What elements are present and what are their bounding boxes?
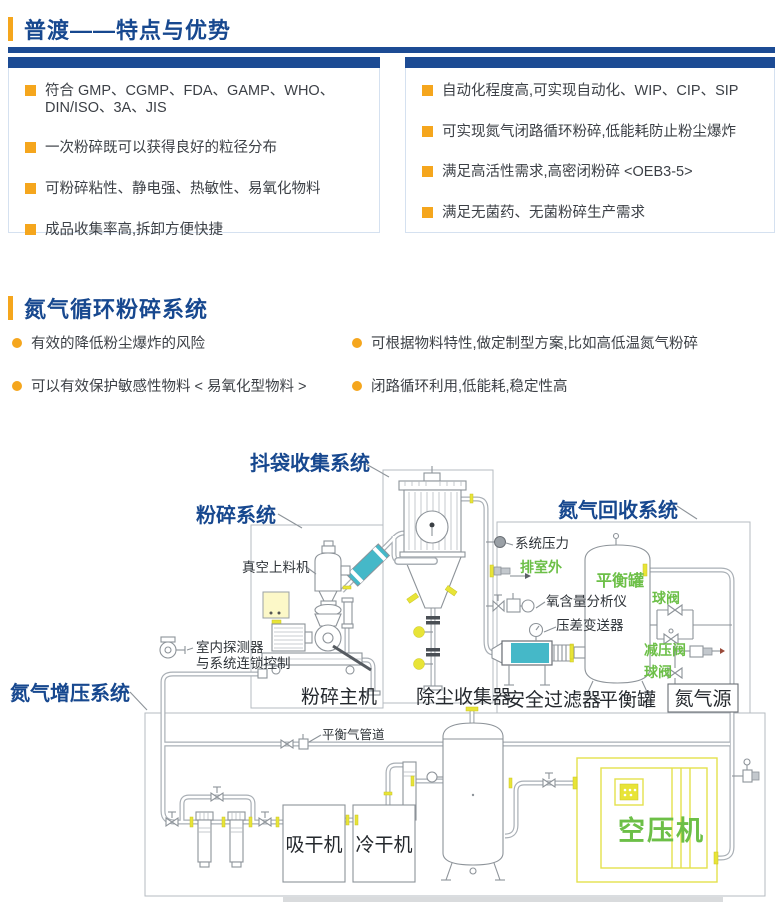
filter-housing	[228, 812, 245, 867]
bullet-text: 可根据物料特性,做定制型方案,比如高低温氮气粉碎	[371, 336, 698, 353]
feature-text: 符合 GMP、CGMP、FDA、GAMP、WHO、DIN/ISO、3A、JIS	[45, 83, 369, 116]
ball-valve-icon	[668, 605, 682, 615]
arrow-right-icon	[720, 648, 725, 654]
pressure-reducing-valve-label: 减压阀	[644, 642, 686, 658]
system-diagram: 抖袋收集系统 粉碎系统 氮气回收系统 氮气增压系统 真空上料机 系统压力 排室外…	[0, 440, 780, 910]
bullet-dot-icon	[352, 338, 362, 348]
bag-collection-label: 抖袋收集系统	[250, 451, 370, 475]
balance-tank	[570, 534, 652, 695]
bullet-item: 闭路循环利用,低能耗,稳定性高	[352, 379, 774, 396]
bullet-square-icon	[422, 166, 433, 177]
bullet-square-icon	[25, 142, 36, 153]
air-compressor-label: 空压机	[618, 815, 705, 846]
section2-title: 氮气循环粉碎系统	[24, 292, 208, 324]
filter-housing	[196, 812, 213, 867]
bellows-icon	[552, 645, 570, 661]
balance-tank-label: 平衡罐	[599, 689, 656, 711]
riser-regulator	[732, 759, 759, 782]
dust-collector	[398, 466, 466, 690]
header-divider	[8, 47, 775, 53]
butterfly-valve-icon	[414, 659, 425, 670]
feature-item: 成品收集率高,拆卸方便快捷	[25, 222, 369, 239]
section1-header: 普渡——特点与优势	[8, 13, 231, 45]
feature-item: 满足无菌药、无菌粉碎生产需求	[422, 205, 764, 222]
ball-valve-lower-label: 球阀	[644, 664, 672, 680]
relief-valve-icon	[493, 601, 504, 611]
section2-header: 氮气循环粉碎系统	[8, 292, 208, 324]
features-card-left: 符合 GMP、CGMP、FDA、GAMP、WHO、DIN/ISO、3A、JIS …	[8, 57, 380, 233]
bullet-item: 有效的降低粉尘爆炸的风险	[12, 336, 352, 353]
control-panel	[263, 592, 289, 618]
pressure-gauge-icon	[427, 772, 437, 782]
bullet-square-icon	[422, 207, 433, 218]
refrigerated-dryer-label: 冷干机	[355, 834, 412, 856]
dp-transmitter-label: 压差变送器	[556, 618, 624, 633]
dust-collector-label: 除尘收集器	[416, 686, 511, 708]
feature-text: 可实现氮气闭路循环粉碎,低能耗防止粉尘爆炸	[442, 124, 736, 141]
bullet-square-icon	[422, 126, 433, 137]
oxygen-analyzer-label: 氧含量分析仪	[546, 594, 627, 609]
bullet-item: 可根据物料特性,做定制型方案,比如高低温氮气粉碎	[352, 336, 774, 353]
features-card-right: 自动化程度高,可实现自动化、WIP、CIP、SIP 可实现氮气闭路循环粉碎,低能…	[405, 57, 775, 233]
bullet-text: 闭路循环利用,低能耗,稳定性高	[371, 379, 568, 396]
balance-gas-pipe-label: 平衡气管道	[322, 727, 385, 742]
bullet-dot-icon	[12, 338, 22, 348]
system-pressure-sensor	[486, 537, 506, 548]
feature-text: 自动化程度高,可实现自动化、WIP、CIP、SIP	[442, 83, 738, 100]
page-title: 普渡——特点与优势	[24, 13, 231, 45]
vacuum-feeder	[315, 541, 350, 605]
accent-bar-icon	[8, 17, 13, 41]
mill-unit-label: 粉碎主机	[301, 686, 377, 708]
section2-bullets: 有效的降低粉尘爆炸的风险 可根据物料特性,做定制型方案,比如高低温氮气粉碎 可以…	[12, 336, 774, 395]
feature-item: 自动化程度高,可实现自动化、WIP、CIP、SIP	[422, 83, 764, 100]
accent-bar-icon	[8, 296, 13, 320]
bullet-square-icon	[25, 224, 36, 235]
feature-text: 满足无菌药、无菌粉碎生产需求	[442, 205, 645, 222]
feature-item: 符合 GMP、CGMP、FDA、GAMP、WHO、DIN/ISO、3A、JIS	[25, 83, 369, 116]
ball-valve-upper-label: 球阀	[652, 590, 680, 606]
safety-filter-label: 安全过滤器	[506, 689, 601, 711]
nitrogen-recovery-label: 氮气回收系统	[558, 498, 678, 522]
system-pressure-label: 系统压力	[515, 536, 569, 551]
card-top-bar	[405, 57, 775, 68]
feature-item: 可粉碎粘性、静电强、热敏性、易氧化物料	[25, 181, 369, 198]
vacuum-feeder-label: 真空上料机	[242, 560, 310, 575]
regulator-icon	[507, 599, 520, 612]
absorption-dryer-label: 吸干机	[285, 834, 342, 856]
globe-valve-icon	[281, 740, 293, 748]
balance-tank-tag: 平衡罐	[596, 571, 644, 590]
butterfly-valve-icon	[414, 627, 425, 638]
shadow-bar	[283, 897, 723, 902]
bullet-dot-icon	[12, 381, 22, 391]
air-storage-tank	[427, 723, 505, 880]
pressure-reducing-valve-icon	[690, 646, 703, 657]
bullet-text: 有效的降低粉尘爆炸的风险	[31, 336, 205, 353]
feature-text: 成品收集率高,拆卸方便快捷	[45, 222, 223, 239]
nitrogen-source-label: 氮气源	[674, 688, 731, 710]
feature-item: 可实现氮气闭路循环粉碎,低能耗防止粉尘爆炸	[422, 124, 764, 141]
grinding-system-label: 粉碎系统	[196, 503, 276, 527]
feature-text: 满足高活性需求,高密闭粉碎 <OEB3-5>	[442, 164, 693, 181]
exhaust-outdoor-label: 排室外	[520, 559, 562, 575]
indoor-detector-label-1: 室内探测器	[196, 639, 264, 655]
wheel-icon	[346, 666, 354, 674]
feature-item: 一次粉碎既可以获得良好的粒径分布	[25, 140, 369, 157]
feature-text: 一次粉碎既可以获得良好的粒径分布	[45, 140, 277, 157]
bullet-square-icon	[422, 85, 433, 96]
bullet-square-icon	[25, 183, 36, 194]
card-top-bar	[8, 57, 380, 68]
bullet-dot-icon	[352, 381, 362, 391]
indoor-detector	[160, 637, 185, 658]
indoor-detector-label-2: 与系统连锁控制	[196, 656, 291, 671]
feature-item: 满足高活性需求,高密闭粉碎 <OEB3-5>	[422, 164, 764, 181]
bullet-text: 可以有效保护敏感性物料 < 易氧化型物料 >	[31, 379, 307, 396]
bullet-item: 可以有效保护敏感性物料 < 易氧化型物料 >	[12, 379, 352, 396]
feature-text: 可粉碎粘性、静电强、热敏性、易氧化物料	[45, 181, 321, 198]
bullet-square-icon	[25, 85, 36, 96]
nitrogen-boost-label: 氮气增压系统	[10, 681, 130, 705]
